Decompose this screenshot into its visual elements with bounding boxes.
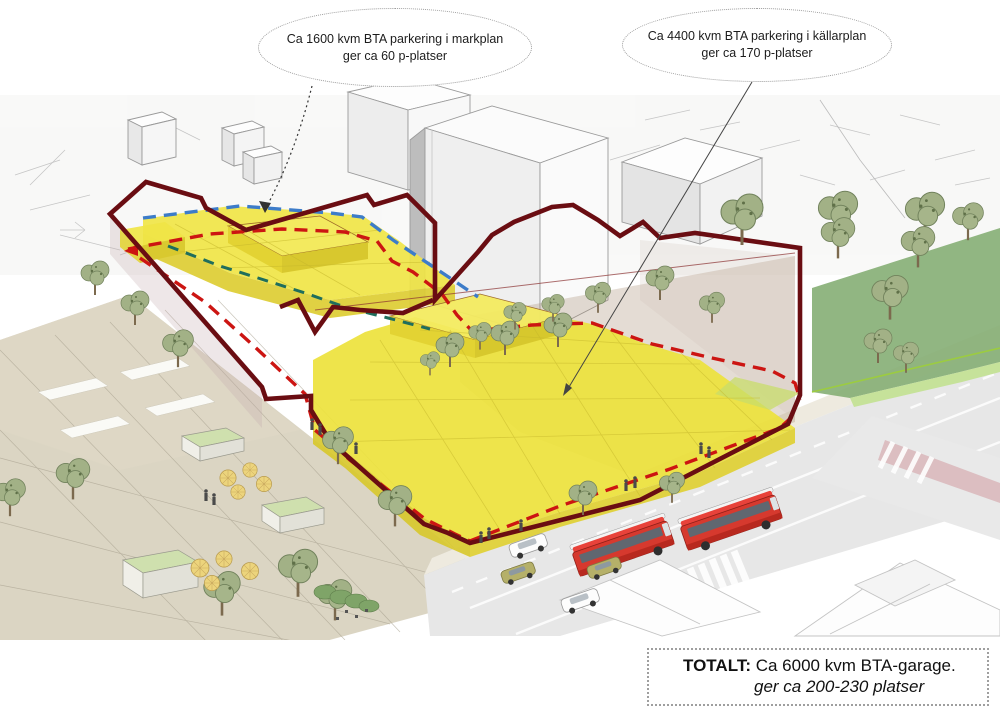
bottom-fade (0, 640, 640, 714)
callout-kallarplan-line1: Ca 4400 kvm BTA parkering i källarplan (630, 28, 885, 45)
total-summary-box: TOTALT: Ca 6000 kvm BTA-garage. ger ca 2… (647, 648, 989, 706)
parking-diagram-canvas: Ca 1600 kvm BTA parkering i markplan ger… (0, 0, 1000, 714)
total-label: TOTALT: (683, 656, 751, 675)
total-line1: Ca 6000 kvm BTA-garage. (756, 656, 956, 675)
callout-kallarplan-line2: ger ca 170 p-platser (701, 45, 812, 62)
total-line2: ger ca 200-230 platser (754, 677, 987, 697)
callout-markplan: Ca 1600 kvm BTA parkering i markplan ger… (258, 8, 532, 87)
site-rendering (0, 0, 1000, 714)
callout-markplan-line1: Ca 1600 kvm BTA parkering i markplan (269, 31, 522, 48)
callout-markplan-line2: ger ca 60 p-platser (343, 48, 447, 65)
callout-kallarplan: Ca 4400 kvm BTA parkering i källarplan g… (622, 8, 892, 82)
